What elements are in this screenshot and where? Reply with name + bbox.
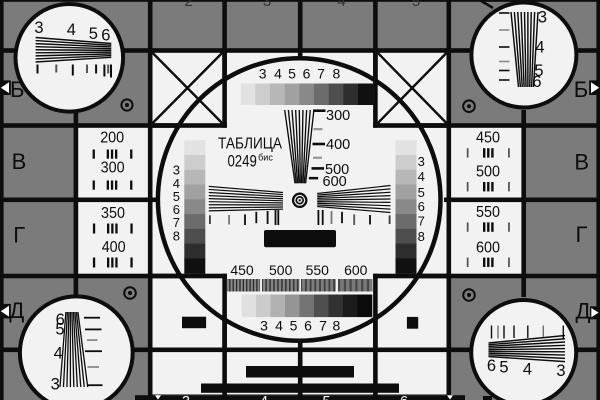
- svg-text:Д: Д: [576, 299, 591, 324]
- svg-text:6: 6: [303, 66, 311, 82]
- svg-text:7: 7: [418, 214, 425, 229]
- svg-text:Г: Г: [13, 223, 25, 248]
- svg-text:7: 7: [319, 318, 327, 334]
- svg-text:6: 6: [532, 73, 541, 91]
- svg-text:4: 4: [54, 345, 63, 363]
- svg-text:350: 350: [101, 205, 125, 222]
- svg-text:4: 4: [535, 39, 544, 57]
- svg-text:3: 3: [538, 9, 547, 27]
- svg-text:5: 5: [499, 359, 508, 377]
- svg-text:6: 6: [418, 199, 425, 214]
- svg-text:5: 5: [89, 25, 98, 43]
- svg-text:4: 4: [274, 66, 282, 82]
- svg-text:2: 2: [184, 0, 192, 10]
- svg-text:8: 8: [333, 66, 341, 82]
- svg-text:600: 600: [323, 174, 347, 190]
- svg-text:400: 400: [326, 137, 350, 153]
- svg-text:450: 450: [230, 262, 254, 278]
- svg-text:8: 8: [418, 229, 425, 244]
- svg-text:8: 8: [173, 228, 180, 243]
- svg-text:3: 3: [556, 362, 565, 380]
- svg-text:400: 400: [102, 239, 126, 256]
- svg-text:6: 6: [400, 394, 408, 400]
- svg-text:200: 200: [100, 130, 124, 147]
- svg-text:5: 5: [322, 394, 330, 400]
- svg-text:4: 4: [67, 21, 76, 39]
- svg-text:3: 3: [182, 394, 190, 400]
- svg-text:5: 5: [288, 66, 296, 82]
- svg-text:5: 5: [412, 0, 420, 10]
- svg-text:300: 300: [101, 160, 125, 177]
- svg-text:бис: бис: [258, 153, 273, 163]
- svg-text:3: 3: [263, 0, 271, 10]
- svg-text:В: В: [574, 150, 589, 175]
- svg-text:450: 450: [476, 129, 500, 146]
- svg-text:550: 550: [476, 204, 500, 221]
- svg-text:600: 600: [344, 262, 368, 278]
- svg-text:4: 4: [523, 361, 532, 379]
- svg-text:Г: Г: [576, 222, 588, 247]
- svg-text:0249: 0249: [227, 152, 257, 170]
- svg-text:Б: Б: [574, 77, 588, 102]
- svg-text:3: 3: [259, 66, 267, 82]
- svg-text:3: 3: [34, 19, 43, 37]
- svg-text:5: 5: [418, 185, 425, 200]
- svg-text:500: 500: [269, 262, 293, 278]
- svg-text:Д: Д: [9, 298, 24, 323]
- svg-text:7: 7: [317, 66, 325, 82]
- svg-text:3: 3: [418, 154, 425, 169]
- svg-text:6: 6: [304, 318, 312, 334]
- svg-text:ТАБЛИЦА: ТАБЛИЦА: [218, 135, 283, 152]
- svg-text:5: 5: [290, 318, 298, 334]
- svg-text:5: 5: [55, 321, 64, 339]
- svg-text:4: 4: [275, 318, 283, 334]
- svg-text:8: 8: [333, 318, 341, 334]
- svg-text:4: 4: [418, 169, 425, 184]
- svg-text:550: 550: [306, 262, 330, 278]
- svg-text:6: 6: [487, 357, 496, 375]
- svg-text:600: 600: [476, 239, 500, 256]
- svg-text:Б: Б: [10, 77, 24, 102]
- svg-text:3: 3: [51, 376, 60, 394]
- svg-text:4: 4: [337, 0, 345, 10]
- svg-text:300: 300: [326, 108, 350, 124]
- svg-text:В: В: [12, 149, 27, 174]
- svg-text:4: 4: [260, 394, 268, 400]
- svg-text:500: 500: [476, 164, 500, 181]
- svg-text:6: 6: [101, 27, 110, 45]
- svg-text:3: 3: [260, 318, 268, 334]
